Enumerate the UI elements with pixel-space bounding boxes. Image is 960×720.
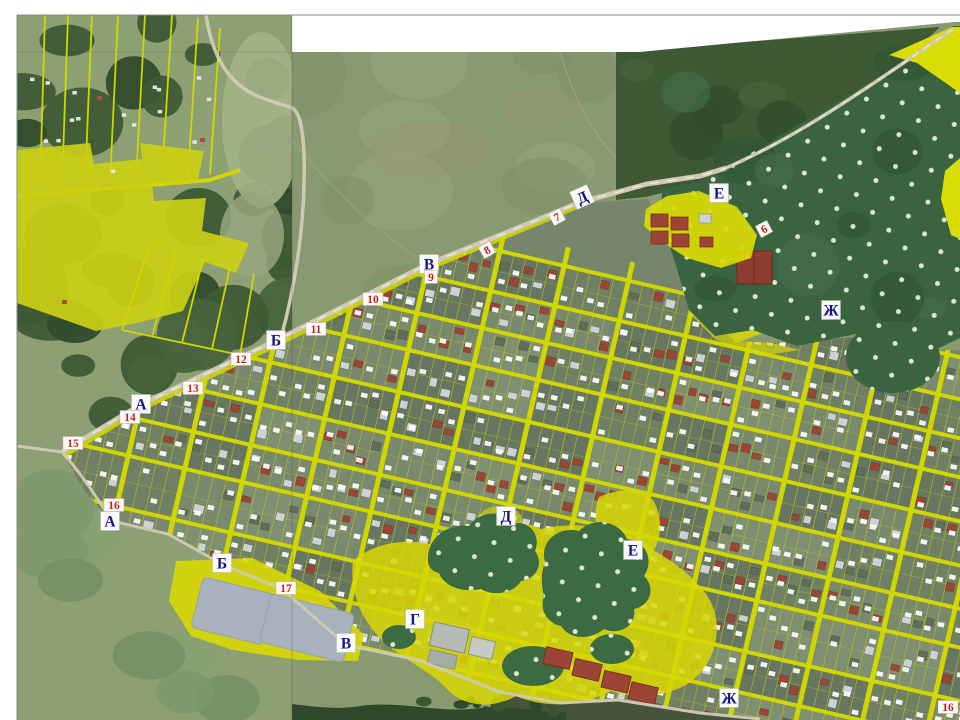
label-text: 11 (311, 324, 322, 336)
street-letter-label: Е (624, 541, 643, 560)
street-number-label: 17 (276, 582, 296, 596)
label-text: 14 (124, 412, 136, 424)
label-text: Ж (721, 691, 737, 708)
street-letter-label: Ж (720, 689, 739, 708)
label-text: В (341, 636, 351, 653)
street-letter-label: В (337, 634, 356, 653)
label-text: 15 (67, 438, 79, 450)
street-letter-label: Ж (822, 301, 841, 320)
street-number-label: 12 (231, 353, 251, 367)
street-letter-label: Д (497, 507, 516, 526)
label-text: 10 (367, 294, 379, 306)
street-number-label: 13 (183, 382, 203, 396)
label-text: Б (217, 556, 227, 573)
street-number-label: 11 (306, 323, 326, 337)
map-canvas: АБВДЕЖАБВГДЕЖ6789101112131415161716 (0, 0, 960, 720)
label-text: 13 (187, 383, 199, 395)
street-letter-label: А (101, 512, 120, 531)
label-text: 16 (108, 500, 120, 512)
street-number-label: 16 (938, 701, 958, 715)
label-text: 9 (428, 272, 434, 284)
label-text: Г (410, 612, 420, 629)
street-number-label: 14 (120, 411, 140, 425)
label-text: Б (271, 333, 281, 350)
label-text: 12 (235, 354, 247, 366)
street-number-label: 15 (63, 437, 83, 451)
label-text: 16 (942, 702, 954, 714)
street-letter-label: Е (710, 184, 729, 203)
street-number-label: 10 (363, 293, 383, 307)
label-text: 17 (280, 583, 292, 595)
label-text: Д (501, 509, 512, 526)
street-number-label: 16 (104, 499, 124, 513)
label-text: Е (628, 543, 638, 560)
street-letter-label: Г (406, 610, 425, 629)
label-text: А (104, 514, 116, 531)
street-number-label: 9 (425, 271, 438, 285)
label-text: Ж (823, 303, 839, 320)
street-letter-label: Б (267, 331, 286, 350)
street-letter-label: Б (213, 554, 232, 573)
cadastral-map-page: АБВДЕЖАБВГДЕЖ6789101112131415161716 (0, 0, 960, 720)
label-text: Е (714, 186, 724, 203)
